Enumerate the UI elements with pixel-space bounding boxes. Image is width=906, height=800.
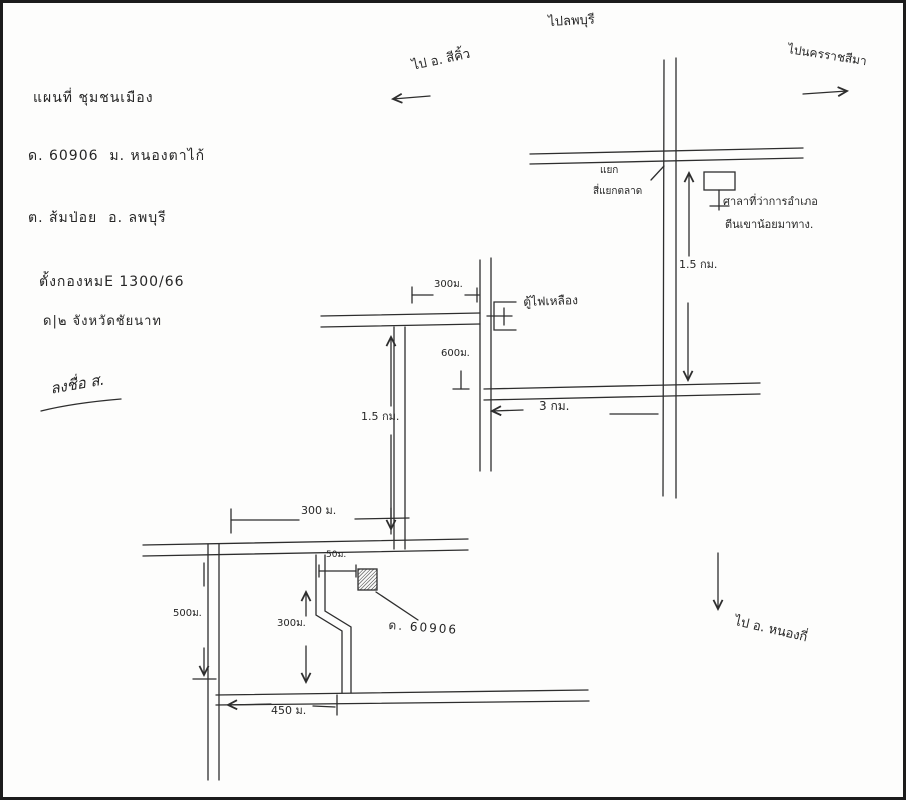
title-line-1: แผนที่ ชุมชนเมือง [33, 91, 154, 106]
title-line-5: ด|๒ จังหวัดชัยนาท [43, 315, 162, 329]
district-office-label-line2: ตีนเขาน้อยมาทาง. [725, 219, 813, 231]
title-line-2: ด. 60906 ม. หนองตาไก้ [28, 149, 205, 164]
measure-right-road [688, 173, 689, 380]
road-right-vertical [663, 58, 676, 498]
road-zigzag-lane [316, 555, 351, 693]
road-top-horizontal [530, 148, 803, 164]
measure-mid-branch [453, 371, 469, 389]
measure-cross-road-label: 3 กม. [539, 400, 569, 413]
measure-west-road-label: 500ม. [173, 608, 202, 619]
measure-cross-road [492, 410, 658, 414]
measure-zigzag-road-label: 300ม. [277, 618, 306, 629]
measure-upper-branch-label: 300ม. [434, 279, 463, 290]
measure-west-road [193, 563, 216, 679]
road-upper-branch [321, 313, 480, 327]
junction-tick [651, 166, 664, 180]
sketch-map-page: แผนที่ ชุมชนเมือง ด. 60906 ม. หนองตาไก้ … [0, 0, 906, 800]
road-left-vertical [394, 327, 405, 549]
measure-bottom-road-label: 450 ม. [271, 705, 306, 717]
junction-label-line1: แยก [600, 165, 618, 176]
measure-left-road-label: 1.5 กม. [361, 411, 399, 423]
title-line-3: ต. ส้มป่อย อ. ลพบุรี [28, 211, 167, 226]
sketch-map-drawing [3, 3, 906, 800]
junction-label-line2: สี่แยกตลาด [593, 186, 642, 197]
measure-right-road-label: 1.5 กม. [679, 259, 717, 271]
road-main-horizontal [143, 539, 468, 556]
pointer-line [376, 592, 418, 620]
direction-north-label: ไปลพบุรี [548, 14, 595, 31]
measure-main-road-label: 300 ม. [301, 505, 336, 517]
road-bottom-horizontal [216, 690, 589, 705]
district-office-label-line1: ศาลาที่ว่าการอำเภอ [723, 196, 818, 208]
arrow-west [393, 96, 430, 99]
measure-driveway-label: 50ม. [326, 551, 346, 561]
incident-house-icon [358, 569, 418, 620]
title-line-4: ตั้งกองหมE 1300/66 [39, 275, 185, 290]
road-middle-horizontal [484, 383, 760, 400]
signature-underline [41, 399, 121, 411]
measure-mid-branch-label: 600ม. [441, 348, 470, 359]
road-west-vertical [208, 544, 219, 780]
arrow-northeast [803, 91, 847, 94]
signal-box-label: ตู้ไฟเหลือง [523, 294, 578, 309]
road-mid-vertical [480, 258, 491, 471]
